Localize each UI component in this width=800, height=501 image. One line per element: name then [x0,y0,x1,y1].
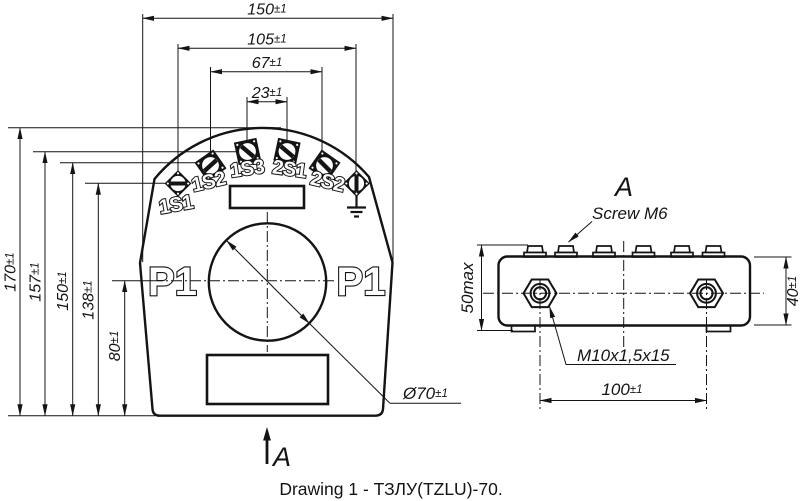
stud-callout-label: M10x1,5x15 [577,346,670,365]
drawing-caption: Drawing 1 - ТЗЛУ(TZLU)-70. [279,479,502,499]
dim-150-top: 150±1 [247,2,286,19]
front-view: P1 P1 150±1 105±1 67±1 23±1 [3,2,462,473]
dim-40-label: 40±1 [785,276,800,307]
dim-80: 80±1 [107,331,124,362]
stud-callout: M10x1,5x15 [550,307,677,366]
nameplate [230,186,304,208]
terminal-label-1s2: 1S2 [190,168,229,197]
ground-icon [347,195,366,217]
terminal-label-2s2: 2S2 [308,168,347,197]
drawing-sheet: P1 P1 150±1 105±1 67±1 23±1 [0,0,800,501]
dim-157: 157±1 [28,262,45,301]
dim-100: 100±1 [540,380,707,401]
dim-50max-label: 50max [458,262,477,314]
side-view: A [458,172,800,409]
core-label-p1-left: P1 [148,260,197,304]
technical-drawing: P1 P1 150±1 105±1 67±1 23±1 [0,0,800,501]
dim-105: 105±1 [247,32,286,49]
core-label-p1-right: P1 [337,260,386,304]
dim-170: 170±1 [3,252,20,291]
view-direction-arrow: A [263,427,291,472]
terminal-label-2s1: 2S1 [271,156,308,183]
dim-150-left: 150±1 [55,271,72,310]
terminal-label-1s1: 1S1 [157,191,195,219]
view-arrow-label: A [271,442,291,472]
dim-67: 67±1 [252,55,283,72]
dim-138: 138±1 [81,280,98,319]
dim-100-label: 100±1 [601,380,642,399]
dim-23: 23±1 [251,85,283,102]
dim-diameter-70: Ø70±1 [402,384,448,403]
side-view-title: A [613,172,633,202]
screw-callout: Screw M6 [569,204,669,242]
screw-callout-label: Screw M6 [592,204,668,223]
dim-50max: 50max [458,245,528,331]
dim-40: 40±1 [754,257,800,325]
bottom-plate [207,355,328,404]
terminal-label-1s3: 1S3 [229,156,266,183]
